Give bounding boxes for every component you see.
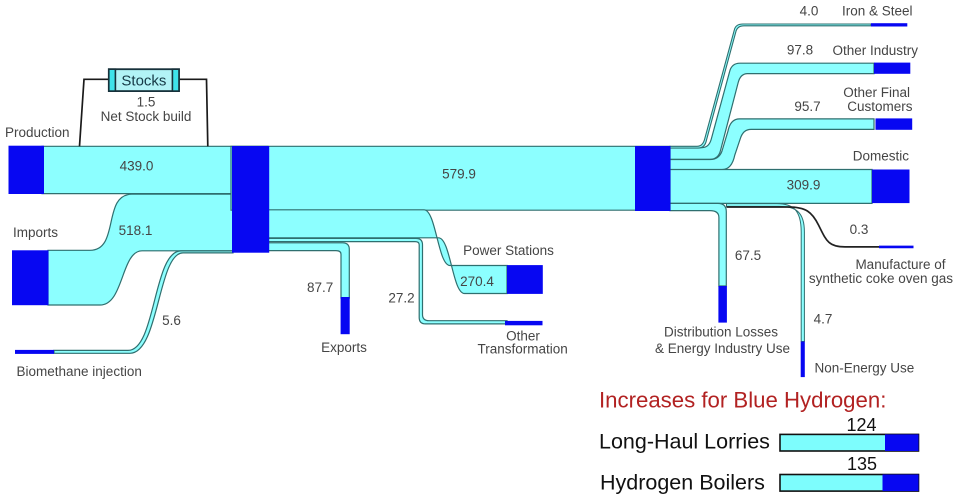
svg-text:Production: Production [5, 125, 70, 140]
svg-text:309.9: 309.9 [787, 178, 821, 193]
svg-text:Net Stock build: Net Stock build [101, 109, 192, 124]
svg-text:Power Stations: Power Stations [463, 243, 554, 258]
svg-text:439.0: 439.0 [120, 159, 154, 174]
svg-text:Imports: Imports [13, 225, 58, 240]
svg-text:Other Industry: Other Industry [833, 43, 919, 58]
svg-text:4.7: 4.7 [814, 312, 833, 327]
svg-text:Transformation: Transformation [477, 341, 567, 356]
svg-text:Non-Energy Use: Non-Energy Use [815, 360, 915, 375]
svg-text:Increases for Blue Hydrogen:: Increases for Blue Hydrogen: [599, 388, 886, 413]
svg-text:Stocks: Stocks [121, 73, 166, 90]
svg-text:124: 124 [846, 415, 876, 435]
svg-text:Manufacture of: Manufacture of [855, 257, 945, 272]
svg-text:synthetic coke oven gas: synthetic coke oven gas [809, 271, 953, 286]
svg-text:Biomethane injection: Biomethane injection [17, 364, 142, 379]
svg-text:518.1: 518.1 [119, 223, 153, 238]
svg-text:4.0: 4.0 [800, 4, 819, 19]
svg-text:95.7: 95.7 [794, 99, 820, 114]
svg-text:87.7: 87.7 [307, 280, 333, 295]
svg-text:67.5: 67.5 [735, 248, 761, 263]
svg-text:270.4: 270.4 [460, 274, 494, 289]
svg-text:& Energy Industry Use: & Energy Industry Use [655, 341, 790, 356]
svg-text:135: 135 [847, 454, 877, 474]
svg-text:0.3: 0.3 [850, 222, 869, 237]
svg-text:97.8: 97.8 [787, 43, 813, 58]
svg-text:Other Final: Other Final [843, 85, 910, 100]
svg-text:Domestic: Domestic [853, 149, 910, 164]
svg-text:579.9: 579.9 [442, 167, 476, 182]
svg-text:Distribution Losses: Distribution Losses [664, 325, 778, 340]
svg-text:27.2: 27.2 [388, 291, 414, 306]
svg-text:Long-Haul Lorries: Long-Haul Lorries [599, 430, 770, 454]
svg-text:Exports: Exports [321, 340, 367, 355]
svg-text:Iron & Steel: Iron & Steel [842, 3, 913, 18]
svg-text:Hydrogen Boilers: Hydrogen Boilers [600, 471, 765, 495]
svg-text:Customers: Customers [847, 99, 913, 114]
svg-text:5.6: 5.6 [162, 313, 181, 328]
svg-text:1.5: 1.5 [137, 95, 156, 110]
